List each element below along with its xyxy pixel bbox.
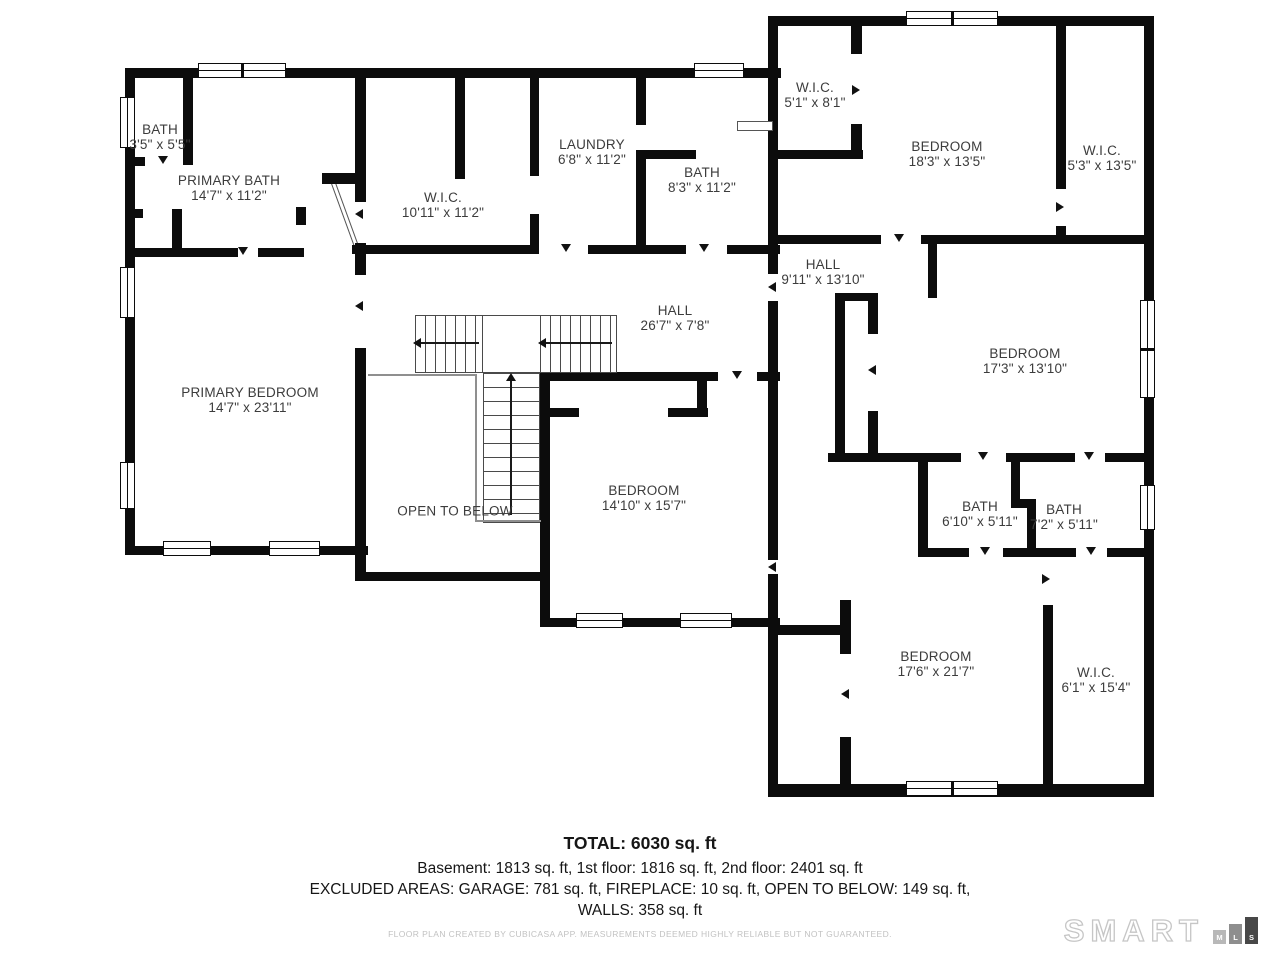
wall	[125, 546, 368, 555]
door-arrow	[894, 234, 904, 242]
room-name: PRIMARY BEDROOM	[181, 385, 319, 400]
window	[906, 11, 998, 26]
door-arrow	[699, 244, 709, 252]
wall	[840, 600, 851, 654]
wall	[636, 78, 646, 125]
stair-direction-arrow	[538, 338, 546, 348]
room-label-bedroom-south: BEDROOM17'6" x 21'7"	[898, 649, 975, 679]
room-name: HALL	[781, 257, 864, 272]
mls-bar-l: L	[1229, 924, 1242, 944]
room-name: BEDROOM	[602, 483, 686, 498]
door-arrow	[158, 156, 168, 164]
door-arrow	[978, 452, 988, 460]
room-name: BEDROOM	[909, 139, 986, 154]
room-dimensions: 10'11" x 11'2"	[402, 205, 484, 220]
window	[120, 267, 135, 318]
window	[269, 541, 320, 556]
door-arrow	[1042, 574, 1050, 584]
room-dimensions: 17'3" x 13'10"	[983, 361, 1067, 376]
wall	[1003, 548, 1076, 557]
excluded-areas: EXCLUDED AREAS: GARAGE: 781 sq. ft, FIRE…	[0, 881, 1280, 899]
window	[1140, 300, 1155, 398]
window-pane-line	[1147, 486, 1149, 529]
room-dimensions: 3'5" x 5'5"	[129, 137, 190, 152]
stair-direction-arrow	[413, 338, 421, 348]
door-arrow	[1086, 547, 1096, 555]
wall	[928, 244, 937, 298]
room-name: BATH	[668, 165, 736, 180]
wall	[125, 248, 238, 257]
wall	[828, 453, 961, 462]
wall	[868, 411, 878, 455]
total-area: TOTAL: 6030 sq. ft	[0, 833, 1280, 854]
room-label-laundry: LAUNDRY6'8" x 11'2"	[558, 137, 626, 167]
door-arrow	[868, 365, 876, 375]
wall	[918, 453, 928, 557]
door-arrow	[1056, 202, 1064, 212]
window-mullion	[241, 64, 244, 77]
wall	[1043, 605, 1053, 784]
room-dimensions: 26'7" x 7'8"	[641, 318, 710, 333]
room-dimensions: 5'3" x 13'5"	[1068, 158, 1137, 173]
wall	[845, 293, 878, 301]
mls-bar-m: M	[1213, 930, 1226, 944]
room-name: BATH	[1030, 502, 1098, 517]
room-name: W.I.C.	[1068, 143, 1137, 158]
wall	[851, 26, 862, 54]
room-label-bedroom-ne: BEDROOM18'3" x 13'5"	[909, 139, 986, 169]
room-name: HALL	[641, 303, 710, 318]
area-summary: TOTAL: 6030 sq. ft Basement: 1813 sq. ft…	[0, 833, 1280, 923]
room-dimensions: 6'1" x 15'4"	[1062, 680, 1131, 695]
wall	[918, 548, 969, 557]
room-label-hall-upper: HALL9'11" x 13'10"	[781, 257, 864, 287]
stair-direction-line	[421, 342, 479, 344]
window-mullion	[1141, 348, 1154, 351]
room-name: W.I.C.	[402, 190, 484, 205]
room-name: W.I.C.	[784, 80, 845, 95]
wall	[757, 372, 780, 381]
wall	[776, 235, 881, 244]
room-name: BEDROOM	[983, 346, 1067, 361]
wall	[1006, 453, 1075, 462]
window	[576, 613, 623, 628]
door-arrow	[561, 244, 571, 252]
door-arrow	[980, 547, 990, 555]
wall	[768, 26, 778, 70]
wall	[127, 157, 145, 166]
room-label-bath-upper-left: BATH3'5" x 5'5"	[129, 122, 190, 152]
stair-direction-line	[546, 342, 612, 344]
room-label-primary-bedroom: PRIMARY BEDROOM14'7" x 23'11"	[181, 385, 319, 415]
door-arrow	[732, 371, 742, 379]
closet-shelf	[737, 121, 773, 131]
door-arrow	[852, 85, 860, 95]
room-label-hall-main: HALL26'7" x 7'8"	[641, 303, 710, 333]
door-arrow	[841, 689, 849, 699]
room-dimensions: 18'3" x 13'5"	[909, 154, 986, 169]
door-arrow	[1084, 452, 1094, 460]
wall	[1144, 16, 1154, 797]
room-label-bath-hall-upper: BATH8'3" x 11'2"	[668, 165, 736, 195]
room-label-bedroom-center: BEDROOM14'10" x 15'7"	[602, 483, 686, 513]
window-pane-line	[164, 548, 210, 550]
door-arrow	[768, 282, 776, 292]
window	[120, 462, 135, 509]
mls-bar-s: S	[1245, 917, 1258, 944]
wall	[358, 572, 549, 581]
wall	[172, 209, 182, 253]
floor-plan-page: BATH3'5" x 5'5"PRIMARY BATH14'7" x 11'2"…	[0, 0, 1280, 960]
wall	[352, 245, 539, 254]
room-dimensions: 6'8" x 11'2"	[558, 152, 626, 167]
room-dimensions: 9'11" x 13'10"	[781, 272, 864, 287]
mls-bars-icon: M L S	[1210, 917, 1258, 944]
wall	[296, 207, 306, 225]
room-dimensions: 14'10" x 15'7"	[602, 498, 686, 513]
window-pane-line	[127, 98, 129, 147]
room-name: W.I.C.	[1062, 665, 1131, 680]
wall	[636, 150, 646, 254]
wall	[840, 737, 851, 784]
floor-opening-line	[475, 374, 477, 522]
wall	[530, 78, 539, 176]
window-pane-line	[127, 463, 129, 508]
window-pane-line	[577, 620, 622, 622]
door-arrow	[238, 247, 248, 255]
wall	[455, 78, 465, 179]
room-dimensions: 14'7" x 23'11"	[181, 400, 319, 415]
room-name: BATH	[129, 122, 190, 137]
smartmls-logo: SMART M L S	[1064, 916, 1258, 946]
window	[163, 541, 211, 556]
stair-direction-line	[510, 381, 512, 515]
window	[680, 613, 732, 628]
room-dimensions: 6'10" x 5'11"	[942, 514, 1018, 529]
window-mullion	[951, 782, 954, 795]
floor-opening-line	[475, 520, 541, 522]
wall	[588, 245, 686, 254]
floor-areas: Basement: 1813 sq. ft, 1st floor: 1816 s…	[0, 860, 1280, 878]
wall	[1056, 26, 1066, 189]
window-pane-line	[681, 620, 731, 622]
room-dimensions: 5'1" x 8'1"	[784, 95, 845, 110]
window-pane-line	[695, 70, 743, 72]
door-arrow	[355, 209, 363, 219]
stair-landing	[482, 315, 541, 373]
stair-direction-arrow	[506, 373, 516, 381]
window-mullion	[951, 12, 954, 25]
window-pane-line	[127, 268, 129, 317]
door-arrow	[355, 301, 363, 311]
wall	[921, 235, 1144, 244]
room-label-primary-bath: PRIMARY BATH14'7" x 11'2"	[178, 173, 280, 203]
window	[198, 63, 286, 78]
wall	[835, 293, 845, 455]
wall	[355, 78, 366, 202]
room-name: BEDROOM	[898, 649, 975, 664]
door-arrow	[768, 562, 776, 572]
room-name: PRIMARY BATH	[178, 173, 280, 188]
wall	[258, 248, 304, 257]
smartmls-wordmark: SMART	[1064, 916, 1204, 946]
stair-run-upper-right	[540, 315, 617, 373]
wall	[545, 408, 579, 417]
wall	[868, 297, 878, 334]
floor-opening-line	[368, 374, 476, 376]
window-pane-line	[270, 548, 319, 550]
room-label-wic-primary: W.I.C.10'11" x 11'2"	[402, 190, 484, 220]
room-dimensions: 14'7" x 11'2"	[178, 188, 280, 203]
room-label-wic-ne-right: W.I.C.5'3" x 13'5"	[1068, 143, 1137, 173]
window	[906, 781, 998, 796]
window	[694, 63, 744, 78]
wall	[1107, 548, 1144, 557]
room-label-wic-ne-left: W.I.C.5'1" x 8'1"	[784, 80, 845, 110]
wall	[768, 301, 778, 560]
wall	[768, 574, 778, 784]
wall	[727, 245, 780, 254]
room-dimensions: 17'6" x 21'7"	[898, 664, 975, 679]
wall	[697, 378, 707, 412]
wall	[355, 348, 366, 581]
room-label-open-to-below: OPEN TO BELOW	[397, 504, 512, 519]
room-label-wic-south: W.I.C.6'1" x 15'4"	[1062, 665, 1131, 695]
wall	[322, 173, 358, 184]
room-name: OPEN TO BELOW	[397, 504, 512, 519]
wall	[776, 150, 863, 159]
room-label-bath-2: BATH7'2" x 5'11"	[1030, 502, 1098, 532]
floor-plan: BATH3'5" x 5'5"PRIMARY BATH14'7" x 11'2"…	[0, 0, 1280, 800]
room-dimensions: 7'2" x 5'11"	[1030, 517, 1098, 532]
wall	[548, 372, 718, 381]
room-label-bedroom-east: BEDROOM17'3" x 13'10"	[983, 346, 1067, 376]
room-label-bath-1: BATH6'10" x 5'11"	[942, 499, 1018, 529]
room-dimensions: 8'3" x 11'2"	[668, 180, 736, 195]
room-name: LAUNDRY	[558, 137, 626, 152]
window	[1140, 485, 1155, 530]
wall	[125, 209, 143, 218]
room-name: BATH	[942, 499, 1018, 514]
wall	[776, 625, 846, 635]
stair-run-upper-left	[415, 315, 483, 373]
wall	[1105, 453, 1144, 462]
wall	[646, 150, 696, 159]
